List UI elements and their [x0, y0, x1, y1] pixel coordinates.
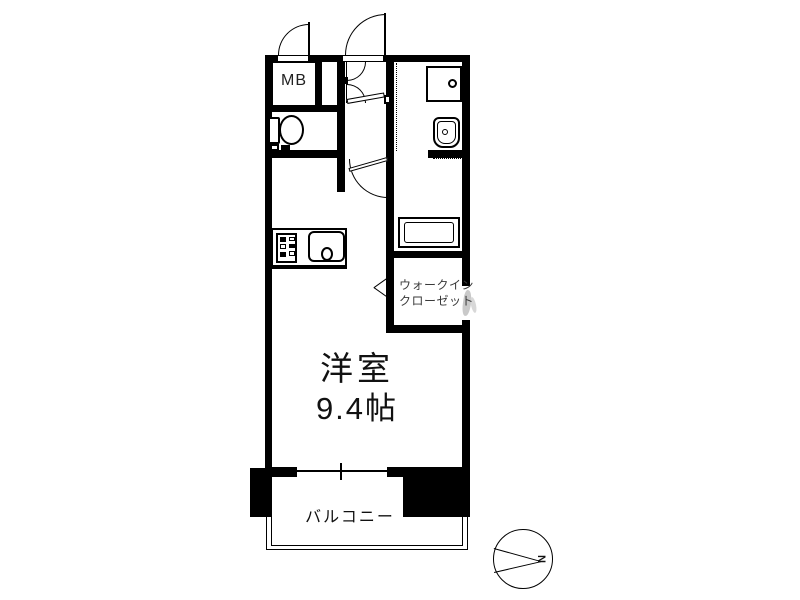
meter-box-label: MB: [272, 72, 316, 90]
stove-burner3-icon: [280, 244, 286, 249]
wall-wic-bottom: [386, 325, 470, 333]
wall-toilet-bottom: [265, 150, 340, 158]
bathroom-folding-door-dotted: [396, 63, 397, 151]
wall-room-bottom-right: [387, 467, 470, 477]
floor-plan: MB 洋室 9.4帖 ウォークイン クローゼット バルコニー N: [0, 0, 800, 600]
bathtub-drain-icon: [448, 79, 457, 88]
stove-burner1-icon: [280, 237, 286, 242]
wall-right: [462, 55, 470, 477]
toilet-control-icon: [270, 144, 279, 151]
door-opening-entrance: [343, 55, 383, 62]
washer-pan-inner-icon: [404, 222, 454, 243]
toilet-control2-icon: [281, 145, 290, 150]
kitchen-faucet-icon: [321, 247, 333, 261]
wic-label-line1: ウォークイン: [399, 276, 474, 293]
stove-burner5-icon: [280, 252, 286, 257]
closet-door-hinge: [341, 77, 348, 84]
closet-door-arc-top: [347, 62, 366, 81]
mb-door-leaf: [308, 22, 310, 55]
stove-burner4-icon: [289, 244, 295, 248]
window-sill-line: [297, 470, 387, 472]
entrance-door-arc: [345, 14, 386, 55]
stove-burner2-icon: [289, 237, 295, 241]
balcony-label: バルコニー: [280, 503, 420, 527]
stove-burner6-icon: [289, 251, 295, 256]
bath-bottom-dotted-line: [433, 158, 467, 159]
kitchen-counter-front-line: [272, 265, 346, 267]
compass-north-label: N: [533, 552, 547, 566]
washbasin-drain-icon: [442, 129, 448, 135]
toilet-bowl-icon: [279, 115, 304, 145]
door-opening-mb: [278, 55, 308, 62]
wall-mb-bottom: [265, 105, 345, 112]
room-area-label: 9.4帖: [272, 383, 442, 428]
entrance-door-leaf: [384, 13, 386, 55]
wall-washer-bottom: [386, 251, 470, 258]
wall-mb-right: [315, 62, 322, 105]
bath-door-hinge-block: [384, 95, 391, 104]
wall-bath-bottom: [428, 150, 470, 158]
wic-label-line2: クローゼット: [399, 292, 474, 309]
mb-door-arc: [278, 24, 309, 55]
